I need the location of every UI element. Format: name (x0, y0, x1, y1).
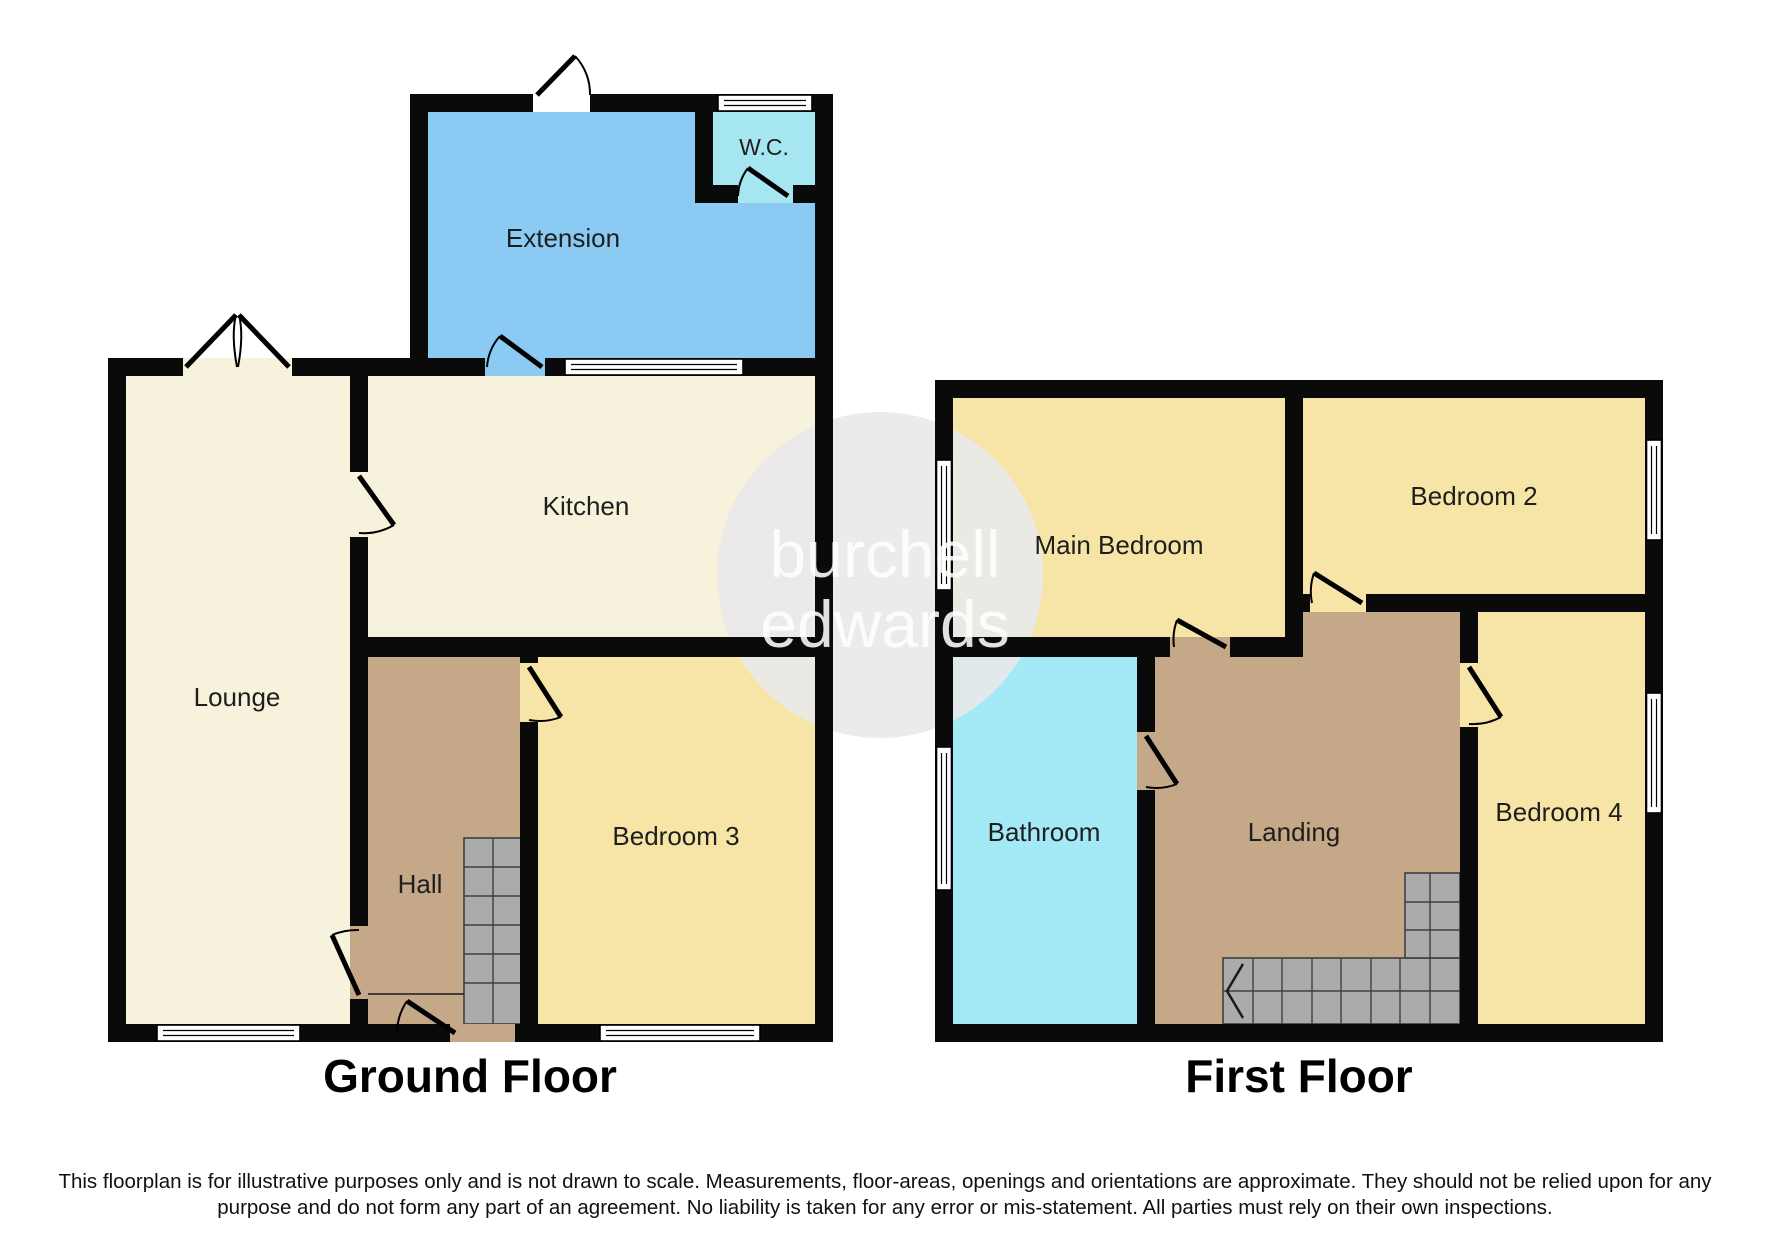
label-kitchen: Kitchen (543, 491, 630, 521)
wall-bathroom-landing (1137, 657, 1155, 1024)
first-floor-title: First Floor (1185, 1050, 1413, 1102)
wall-mainbedroom-bedroom2 (1285, 398, 1303, 657)
opening-bathroom-door (1137, 732, 1155, 790)
wall-extension-left (410, 94, 428, 376)
ground-floor-title: Ground Floor (323, 1050, 617, 1102)
opening-hall-bedroom3-door (520, 663, 538, 722)
disclaimer: This floorplan is for illustrative purpo… (58, 1170, 1712, 1219)
floor-titles: Ground Floor First Floor (323, 1050, 1413, 1102)
label-main-bedroom: Main Bedroom (1034, 530, 1203, 560)
watermark-line1: burchell (769, 517, 1000, 591)
window-bedroom3 (600, 1025, 760, 1041)
window-bedroom2 (1647, 440, 1662, 540)
opening-lounge-french-doors (183, 358, 292, 376)
disclaimer-line1: This floorplan is for illustrative purpo… (58, 1170, 1712, 1193)
wall-kitchen-bottom (350, 637, 815, 657)
watermark-line2: edwards (760, 587, 1009, 661)
window-lounge (157, 1025, 300, 1041)
door-extension-rear (537, 56, 590, 95)
floorplan-page: Extension W.C. Kitchen Lounge Hall Bedro… (0, 0, 1771, 1240)
label-bedroom3: Bedroom 3 (612, 821, 739, 851)
window-kitchen-extension (565, 359, 743, 375)
wall-ff-bottom (935, 1024, 1663, 1042)
label-hall: Hall (398, 869, 443, 899)
watermark: burchell edwards (760, 517, 1009, 661)
window-bathroom (937, 747, 952, 890)
window-bedroom4 (1647, 693, 1662, 813)
label-extension: Extension (506, 223, 620, 253)
wall-ff-top (935, 380, 1663, 398)
staircase-turn (1405, 873, 1460, 958)
label-landing: Landing (1248, 817, 1341, 847)
disclaimer-line2: purpose and do not form any part of an a… (217, 1196, 1552, 1219)
opening-front-door (450, 1024, 515, 1042)
wall-gf-left (108, 358, 126, 1042)
label-lounge: Lounge (194, 682, 281, 712)
floorplan-drawing: Extension W.C. Kitchen Lounge Hall Bedro… (0, 0, 1771, 1240)
opening-extension-rear-door (533, 94, 590, 112)
label-bedroom4: Bedroom 4 (1495, 797, 1622, 827)
label-bedroom2: Bedroom 2 (1410, 481, 1537, 511)
label-bathroom: Bathroom (988, 817, 1101, 847)
label-wc: W.C. (739, 134, 789, 160)
window-wc (718, 95, 812, 111)
opening-lounge-hall-door (350, 926, 368, 999)
